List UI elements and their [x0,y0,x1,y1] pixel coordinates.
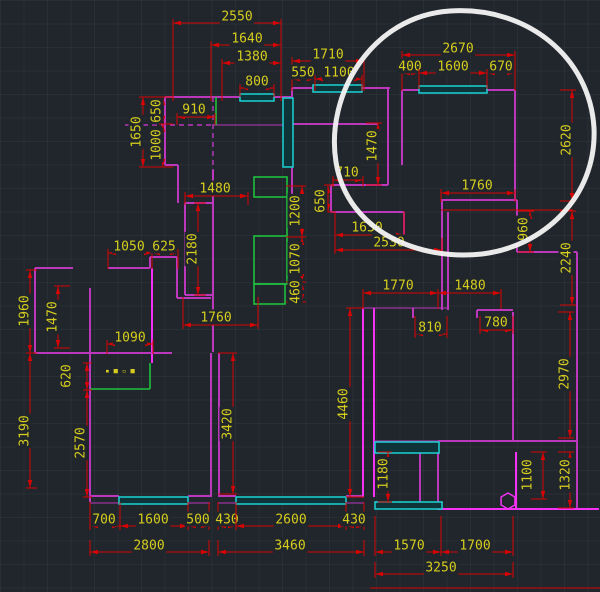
dimension-label: 4460 [337,388,352,419]
dimension: 460 [286,279,306,306]
dimension-label: 2180 [186,233,201,264]
dimension-label-group: 810 [417,320,444,336]
dimension-arrow [231,486,235,494]
dimension-label: 700 [92,513,115,528]
dimension-arrow [273,43,281,47]
dimension-label: 1760 [461,179,492,194]
dimension-label: 2970 [558,358,573,389]
dimension-arrow [433,550,441,554]
dimension-arrow [441,191,449,195]
dimension: 3190 [17,353,38,488]
dimension-arrow [568,312,572,320]
dimension-label-group: 2670 [441,41,475,57]
dimension-arrow [218,550,226,554]
dimension-label-group: 650 [149,98,165,125]
dimension: 780 [480,315,513,335]
dimension-label-group: 1570 [392,538,426,554]
dimension-label-group: 1600 [436,59,470,75]
dimension-label: 1600 [137,513,168,528]
dimension-arrow [28,345,32,353]
dimension-label: 1050 [113,240,144,255]
dimension-label: 400 [398,60,421,75]
dimension-arrow [120,524,128,528]
dimension-label-group: 2180 [185,232,201,266]
dimension-label-group: 2620 [559,123,575,157]
dimension: 1200 [286,186,306,237]
dimension-label-group: 2550 [220,9,254,25]
dimension-arrow [570,211,574,219]
dimension-label-group: 460 [288,279,304,306]
dimension-label: 3460 [274,539,305,554]
dimension-label: 1760 [200,311,231,326]
dimension-arrow [201,550,209,554]
column-hexagon [501,493,515,509]
dimension-label-group: 430 [341,512,368,528]
dimension-arrow [141,159,145,167]
dimension: 3460 [218,538,364,557]
dimension-label: 650 [314,189,329,212]
dimension-label-group: 1960 [17,294,33,328]
dimension: 3250 [375,560,513,579]
dimension-arrow [507,191,515,195]
dimension-label-group: 1180 [376,457,392,491]
dimension-arrow [570,297,574,305]
dimension: 1480 [185,181,248,206]
dimension-label: 1650 [130,116,145,147]
dimension-label-group: 1700 [458,538,492,554]
dimension-label-group: 3460 [273,538,307,554]
dimension-arrow [441,550,449,554]
dimension-label-group: 2800 [132,538,166,554]
dimension-arrow [541,491,545,499]
dimension-arrow [300,229,304,237]
dimension: 4460 [336,308,365,497]
dimension-arrow [85,390,89,398]
dimension-arrow [507,53,515,57]
dimension-arrow [56,340,60,348]
dimension: 1000 [149,124,174,167]
dimension-arrow [173,21,181,25]
dimension-label: 1600 [437,60,468,75]
dimension-arrow [85,489,89,497]
dimension-label: 650 [150,99,165,122]
dimension-label: 800 [245,75,268,90]
dimension-arrow [240,194,248,198]
dimension-arrow [141,97,145,105]
dimension-label: 1380 [236,50,267,65]
dimension: 810 [415,316,447,338]
dimension-arrow [568,500,572,508]
dimension-arrow [28,353,32,361]
window-marker [375,502,442,509]
dimension-arrow [85,363,89,371]
dimension-label: 2800 [133,539,164,554]
dimension: 1760 [183,297,258,329]
dimension-label: 2240 [560,242,575,273]
dimension-label-group: 1050 [112,239,146,255]
dimension-arrow [402,53,410,57]
dimension: 1570 [375,516,441,556]
dimension-label: 430 [215,513,238,528]
dimension-arrow [505,550,513,554]
dimension: 3420 [218,353,237,494]
dimension: 1770 [363,278,438,310]
dimension: 500 [185,502,212,530]
dimension-label-group: 500 [185,512,212,528]
cad-canvas[interactable]: 2550164013808001710550110026704001600670… [0,0,600,592]
dimension-label-group: 1760 [460,178,494,194]
dimension-label: 1770 [382,279,413,294]
dimension-label-group: 2240 [559,241,575,275]
dimension-label-group: 1000 [149,128,165,162]
dimension-label-group: 800 [244,74,271,90]
dimension-label-group: 2970 [557,357,573,391]
dimension-label: 1090 [114,331,145,346]
dimension: 670 [487,59,515,90]
dimension-arrow [273,21,281,25]
dimension: 1070 [286,237,306,282]
dimension-label: 3420 [221,408,236,439]
dimension-arrow [479,71,487,75]
dimension-label: 1180 [377,458,392,489]
dimension-label: 1000 [150,129,165,160]
dimension-label-group: 620 [59,363,75,390]
dimension: 430 [341,502,368,530]
dimension-label: 1700 [459,539,490,554]
dimension: 1960 [17,270,38,353]
dimension: 620 [59,363,93,390]
dimension-label: 670 [489,60,512,75]
dimension-label-group: 1770 [381,278,415,294]
dimension-label: 2550 [221,10,252,25]
dimension-arrow [231,353,235,361]
dimension-arrow [292,59,300,63]
window-marker [375,442,439,453]
dimension-label: 460 [289,280,304,303]
window-marker [419,86,487,93]
dimension: 1600 [120,502,188,530]
dimension-label: 1200 [289,195,304,226]
dimension: 2240 [559,211,577,305]
dimension-label: 430 [342,513,365,528]
dimension-arrow [207,115,215,119]
dimension-label-group: 4460 [336,387,352,421]
dimension-label: 3190 [18,415,33,446]
dimension-arrow [90,550,98,554]
dimension-label: 1640 [231,32,262,47]
dimension: 2600 [236,502,346,530]
dimension-label: 1470 [366,130,381,161]
dimension-arrow [375,550,383,554]
dimension-arrow [185,194,193,198]
dimension-label-group: 2600 [274,512,308,528]
dimension-label: 2670 [442,42,473,57]
dimension: 1050 [108,239,152,270]
dimension-arrow [376,177,380,185]
dimension-arrow [348,308,352,316]
dimension: 1180 [376,452,393,502]
dimension-arrow [56,286,60,294]
dimension-arrow [273,61,281,65]
dimension-arrow [196,203,200,211]
dimension-label-group: 1200 [288,194,304,228]
dimension: 625 [151,239,178,270]
dimension-arrow [363,291,371,295]
dimension-label: 1100 [521,459,536,490]
dimension-label-group: 1650 [129,115,145,149]
dimension-label: 2570 [74,427,89,458]
dimension-label-group: 1470 [365,129,381,163]
dimension-label: 3250 [425,561,456,576]
dimension-label-group: 1070 [288,242,304,276]
dimension-arrow [28,270,32,278]
dimension-label-group: 1090 [113,330,147,346]
dimension-label-group: 1480 [453,278,487,294]
dimension: 1320 [558,452,575,508]
dimension-arrow [528,244,532,252]
dimension: 1470 [365,123,383,185]
dimension: 700 [90,502,120,530]
dimension-label-group: 3250 [424,560,458,576]
dimension-arrow [570,90,574,98]
dimension-arrow [505,572,513,576]
dimension-arrow [335,233,343,237]
dimension-label: 1480 [199,182,230,197]
dimension-label: 550 [291,66,314,81]
dimension-arrow [335,248,343,252]
dimension: 2620 [559,90,577,201]
dimension: 1760 [441,178,515,203]
dimension-label: 1070 [289,243,304,274]
dimension-label: 620 [60,364,75,387]
dimension-label-group: 2570 [73,426,89,460]
dimension-label: 2620 [560,124,575,155]
window-marker [236,497,346,504]
dimension-arrow [568,430,572,438]
dimension: 2800 [90,538,209,557]
dimension-label: 1480 [454,279,485,294]
dimension-label: 1470 [46,301,61,332]
dimension-label-group: 1760 [199,310,233,326]
dimension-arrow [386,494,390,502]
dimension-arrow [300,186,304,194]
dimension-label-group: 1320 [558,458,574,492]
window-marker [119,497,188,504]
dimension-label-group: 670 [488,59,515,75]
sofa-furniture [254,284,285,304]
dimension: 650 [149,97,174,124]
dimension: 910 [177,102,215,126]
dimension-label-group: 1600 [136,512,170,528]
dimension: 1100 [520,452,548,499]
dimension-arrow [28,480,32,488]
window-marker [313,85,362,92]
dimension-label: 1320 [559,459,574,490]
dimension-label: 910 [182,103,205,118]
dimension: 1470 [45,286,71,348]
dimension: 2180 [185,203,207,295]
dimension: 1700 [441,516,513,556]
dimension-label-group: 1640 [230,31,264,47]
dimension-arrow [356,550,364,554]
sofa-furniture [254,177,287,197]
dimension-label: 1710 [312,48,343,63]
dimension-label: 1960 [18,295,33,326]
window-marker [240,94,274,101]
dimension-label: 810 [418,321,441,336]
floor-plan-drawing: 2550164013808001710550110026704001600670… [0,0,600,592]
dimension-arrow [183,323,191,327]
sofa-furniture [254,236,287,284]
dimension-arrow [375,572,383,576]
dimension-label-group: 1470 [45,300,61,334]
dimension-arrow [250,323,258,327]
dimension-label-group: 625 [151,239,178,255]
dimension-arrow [430,291,438,295]
dimension-arrow [85,382,89,390]
dimension-arrow [541,452,545,460]
dimension: 2970 [557,312,575,438]
dimension-label: 2600 [275,513,306,528]
dimension-label: 1570 [393,539,424,554]
dimension: 1090 [107,330,153,355]
cabinet-tiny-label: ▪ ■ ▫ ■ [105,367,135,375]
dimension-label-group: 1480 [198,181,232,197]
dimension-label: 625 [152,240,175,255]
dimension-label-group: 780 [483,315,510,331]
dimension-arrow [211,43,219,47]
dimension-label-group: 700 [91,512,118,528]
dimension-label-group: 550 [290,65,317,81]
dimension-label-group: 650 [313,188,329,215]
dimension-label-group: 1710 [311,47,345,63]
dimension-label-group: 3190 [17,414,33,448]
dimension-label-group: 1380 [235,49,269,65]
dimension-label: 500 [186,513,209,528]
dimension-arrow [493,291,501,295]
dimension-label-group: 3420 [220,407,236,441]
dimension: 1600 [419,59,487,90]
dimension-label-group: 910 [181,102,208,118]
dimension-arrow [222,61,230,65]
dimension-label-group: 1100 [520,458,536,492]
dimension-arrow [196,287,200,295]
window-marker [283,98,293,167]
dimension-label: 780 [484,316,507,331]
